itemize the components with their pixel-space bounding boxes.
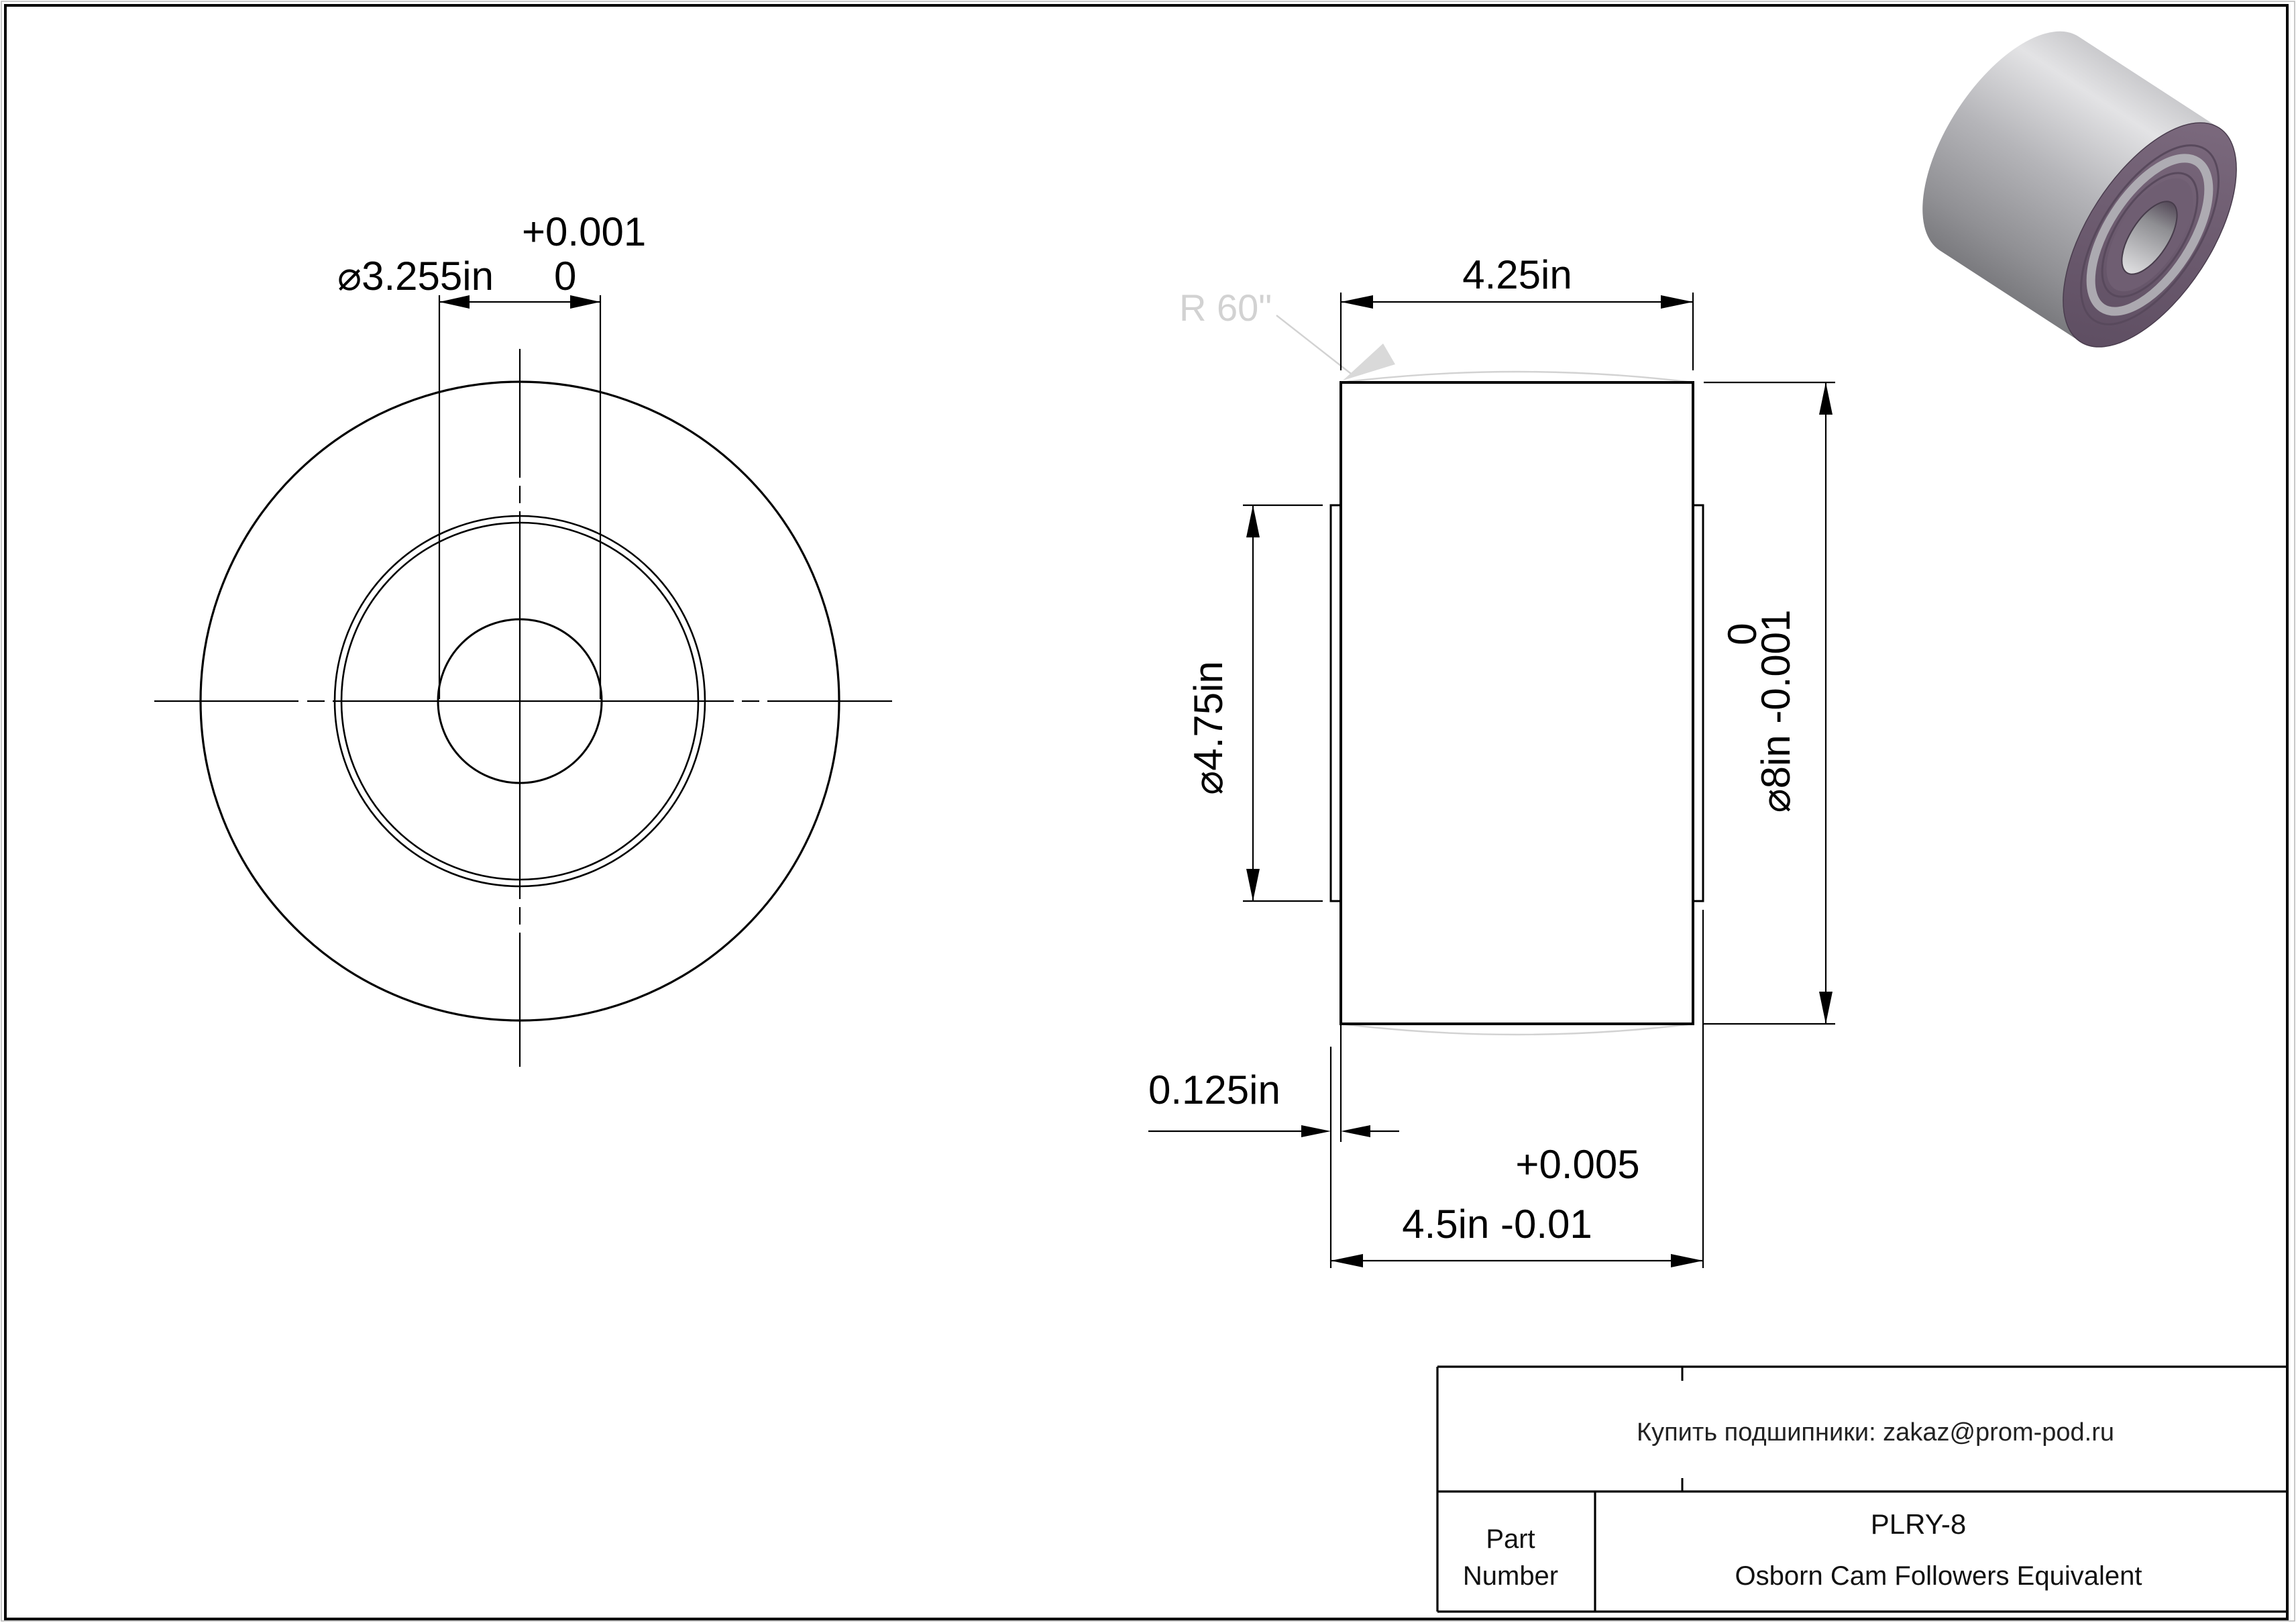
end-plate-left [1331,505,1341,901]
side-view-labels: R 60" 4.25in ⌀4.75in ⌀8in -0.001 0 0.125… [1148,252,1798,1247]
crown-radius-label: R 60" [1179,286,1272,329]
crown-arc-top [1341,372,1693,382]
arrowhead-right [1671,1254,1703,1267]
front-view [154,295,892,1067]
arrowhead-pointing-left [1341,1125,1370,1137]
title-block-text: Купить подшипники: zakaz@prom-pod.ru Par… [1463,1418,2142,1591]
crown-annotations [1276,315,1693,1035]
width-dimension [1341,293,1693,370]
crown-leader-arrowhead [1343,344,1395,380]
front-view-centerlines [154,349,892,1067]
arrowhead-pointing-right [1301,1125,1331,1137]
crown-arc-bottom [1341,1024,1693,1035]
offset-dimension [1148,1024,1399,1268]
bore-dim-tol-lower: 0 [554,254,576,299]
width-dim-label: 4.25in [1462,252,1572,297]
end-plate-right [1693,505,1703,901]
side-view [1148,293,1835,1268]
drawing-sheet: ⌀3.255in +0.001 0 [0,0,2296,1623]
arrowhead-bottom [1819,992,1833,1024]
technical-drawing-canvas: ⌀3.255in +0.001 0 [0,0,2296,1623]
bearing-3d-render [1888,3,2271,375]
arrowhead-right [1661,295,1693,309]
arrowhead-bottom [1246,869,1260,901]
front-view-labels: ⌀3.255in +0.001 0 [337,209,646,299]
outer-dia-dim-tol-upper: 0 [1720,623,1765,645]
roller-body-outline [1341,382,1693,1024]
part-label-line2: Number [1463,1561,1558,1591]
overall-width-tol-upper: +0.005 [1515,1142,1639,1187]
offset-dim-label: 0.125in [1148,1067,1280,1112]
arrowhead-left [1341,295,1373,309]
part-label-line1: Part [1486,1524,1535,1554]
plate-diameter-dimension [1243,505,1323,901]
bore-dim-tol-upper: +0.001 [522,209,646,254]
part-number-value: PLRY-8 [1871,1508,1966,1540]
contact-line: Купить подшипники: zakaz@prom-pod.ru [1637,1418,2114,1447]
arrowhead-left [1331,1254,1363,1267]
part-subtitle: Osborn Cam Followers Equivalent [1735,1561,2142,1591]
arrowhead-top [1246,505,1260,537]
overall-width-dim-label: 4.5in -0.01 [1402,1202,1592,1247]
arrowhead-top [1819,382,1833,415]
plate-dia-dim-label: ⌀4.75in [1186,661,1231,795]
bore-dim-label: ⌀3.255in [337,254,494,299]
crown-leader-line [1276,315,1354,376]
